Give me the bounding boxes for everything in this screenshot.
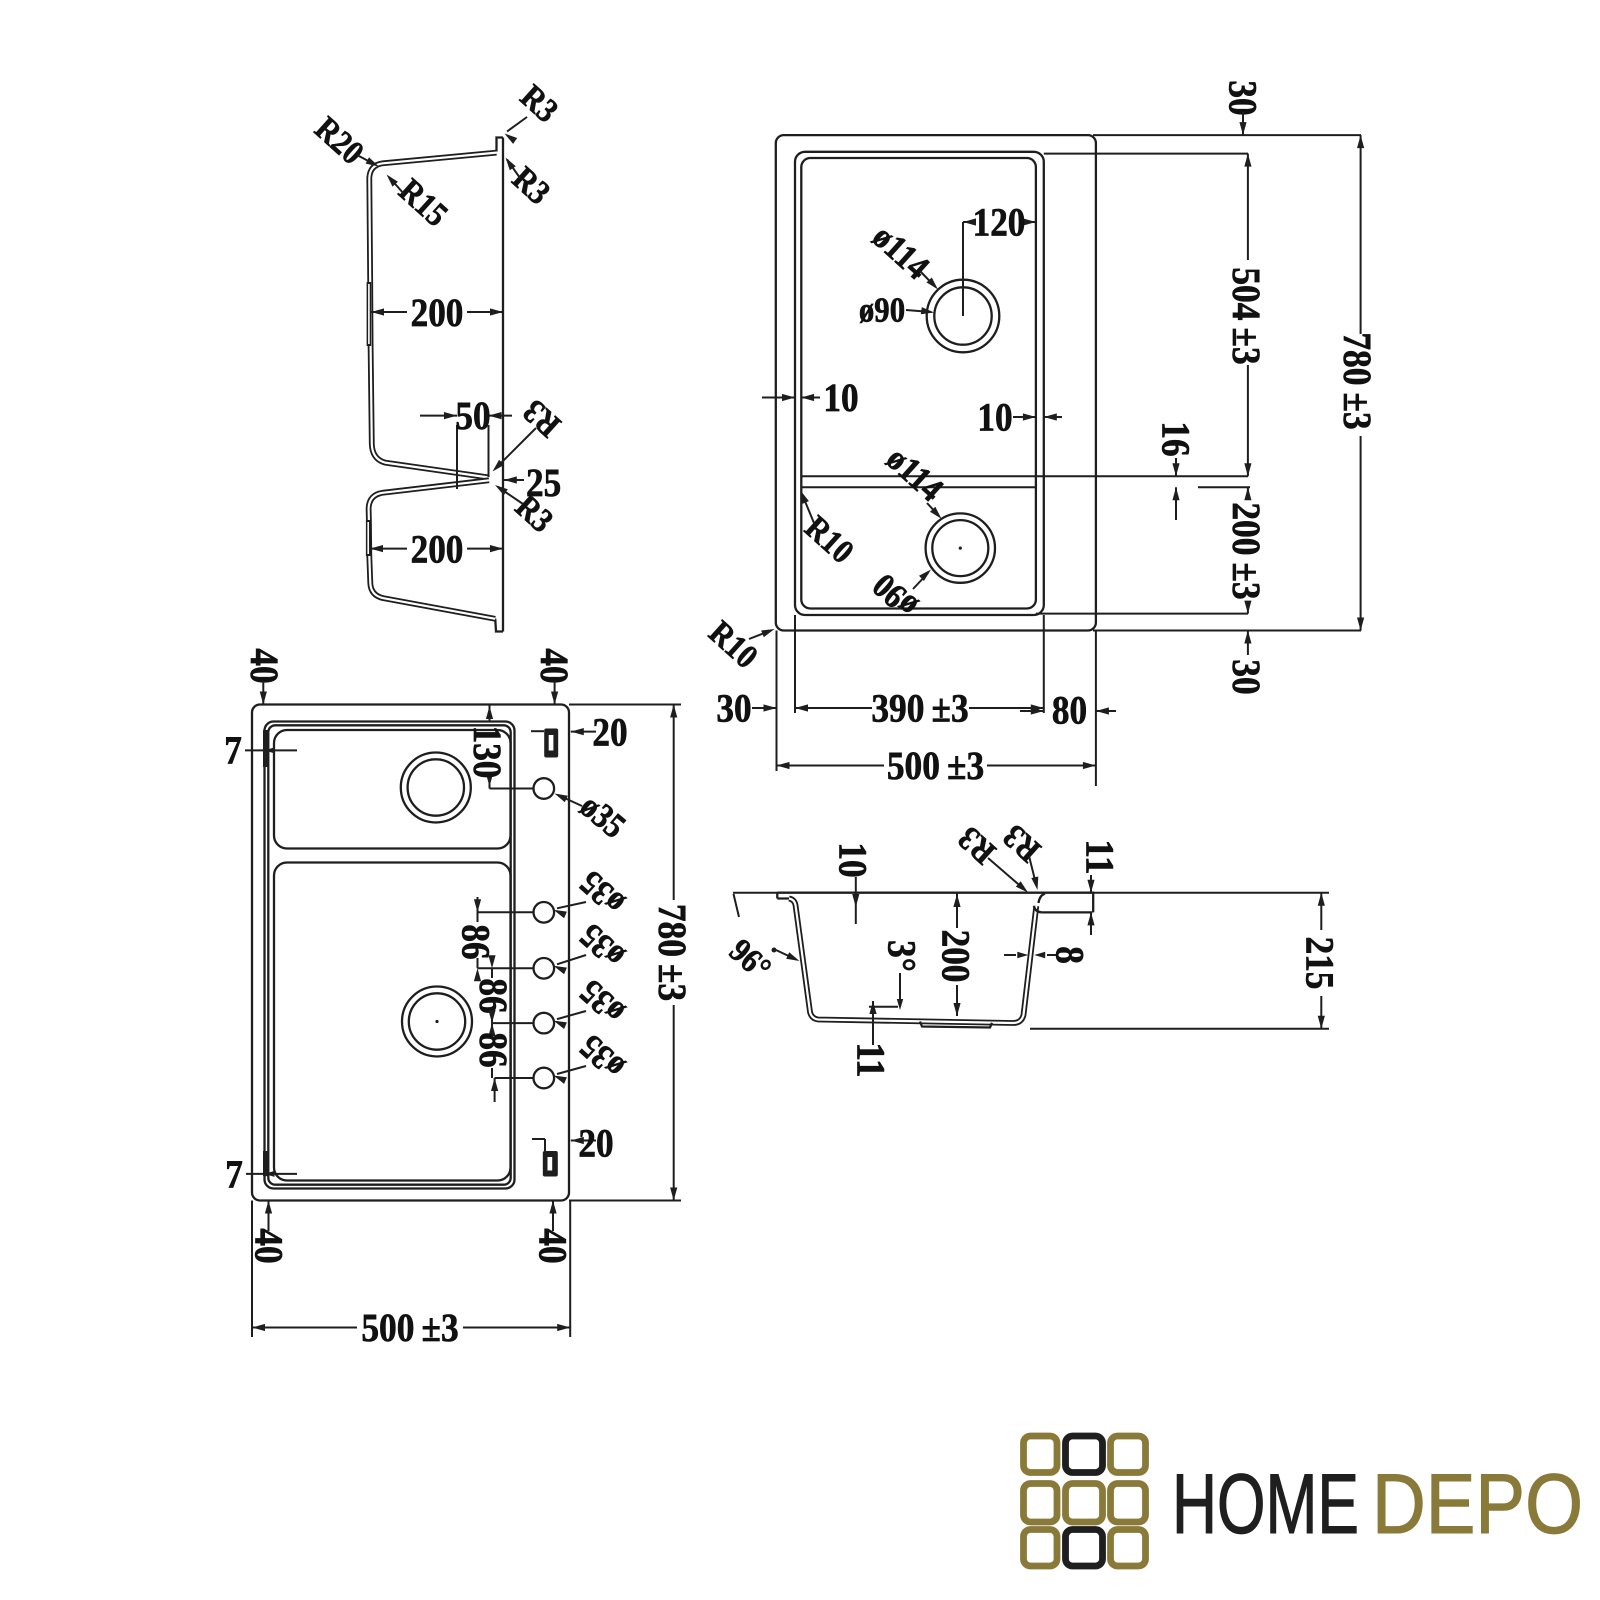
svg-text:390 ±3: 390 ±3: [871, 686, 968, 731]
svg-text:500 ±3: 500 ±3: [887, 743, 984, 788]
svg-text:86: 86: [471, 978, 516, 1013]
svg-text:30: 30: [1221, 80, 1266, 115]
svg-text:11: 11: [849, 1042, 894, 1077]
svg-text:DEPO: DEPO: [1372, 1457, 1583, 1552]
svg-text:ø90: ø90: [859, 291, 905, 330]
svg-text:200: 200: [411, 290, 464, 335]
svg-text:16: 16: [1154, 421, 1199, 456]
svg-text:120: 120: [973, 200, 1026, 245]
svg-text:30: 30: [716, 686, 751, 731]
svg-text:40: 40: [532, 648, 577, 683]
svg-text:10: 10: [831, 842, 876, 877]
svg-text:504 ±3: 504 ±3: [1224, 267, 1269, 364]
svg-text:20: 20: [578, 1121, 613, 1166]
svg-text:3°: 3°: [880, 940, 925, 972]
svg-text:200: 200: [411, 527, 464, 572]
svg-text:20: 20: [592, 710, 627, 755]
svg-text:40: 40: [247, 1228, 292, 1263]
svg-text:200: 200: [934, 930, 979, 983]
svg-text:780 ±3: 780 ±3: [1335, 332, 1380, 429]
svg-text:780 ±3: 780 ±3: [650, 904, 695, 1001]
svg-text:7: 7: [225, 1152, 243, 1197]
svg-text:86: 86: [471, 1032, 516, 1067]
svg-text:80: 80: [1052, 688, 1087, 733]
svg-text:7: 7: [224, 728, 242, 773]
svg-text:8: 8: [1048, 946, 1093, 964]
svg-text:200 ±3: 200 ±3: [1224, 502, 1269, 599]
svg-text:11: 11: [1078, 839, 1123, 874]
svg-text:130: 130: [465, 726, 510, 779]
svg-text:10: 10: [977, 395, 1012, 440]
svg-text:HOME: HOME: [1172, 1457, 1359, 1552]
svg-text:10: 10: [823, 375, 858, 420]
svg-text:86: 86: [454, 924, 499, 959]
svg-text:40: 40: [531, 1228, 576, 1263]
svg-text:30: 30: [1224, 659, 1269, 694]
svg-text:215: 215: [1298, 937, 1343, 990]
svg-text:50: 50: [455, 393, 490, 438]
svg-text:500 ±3: 500 ±3: [361, 1305, 458, 1350]
svg-text:40: 40: [242, 648, 287, 683]
